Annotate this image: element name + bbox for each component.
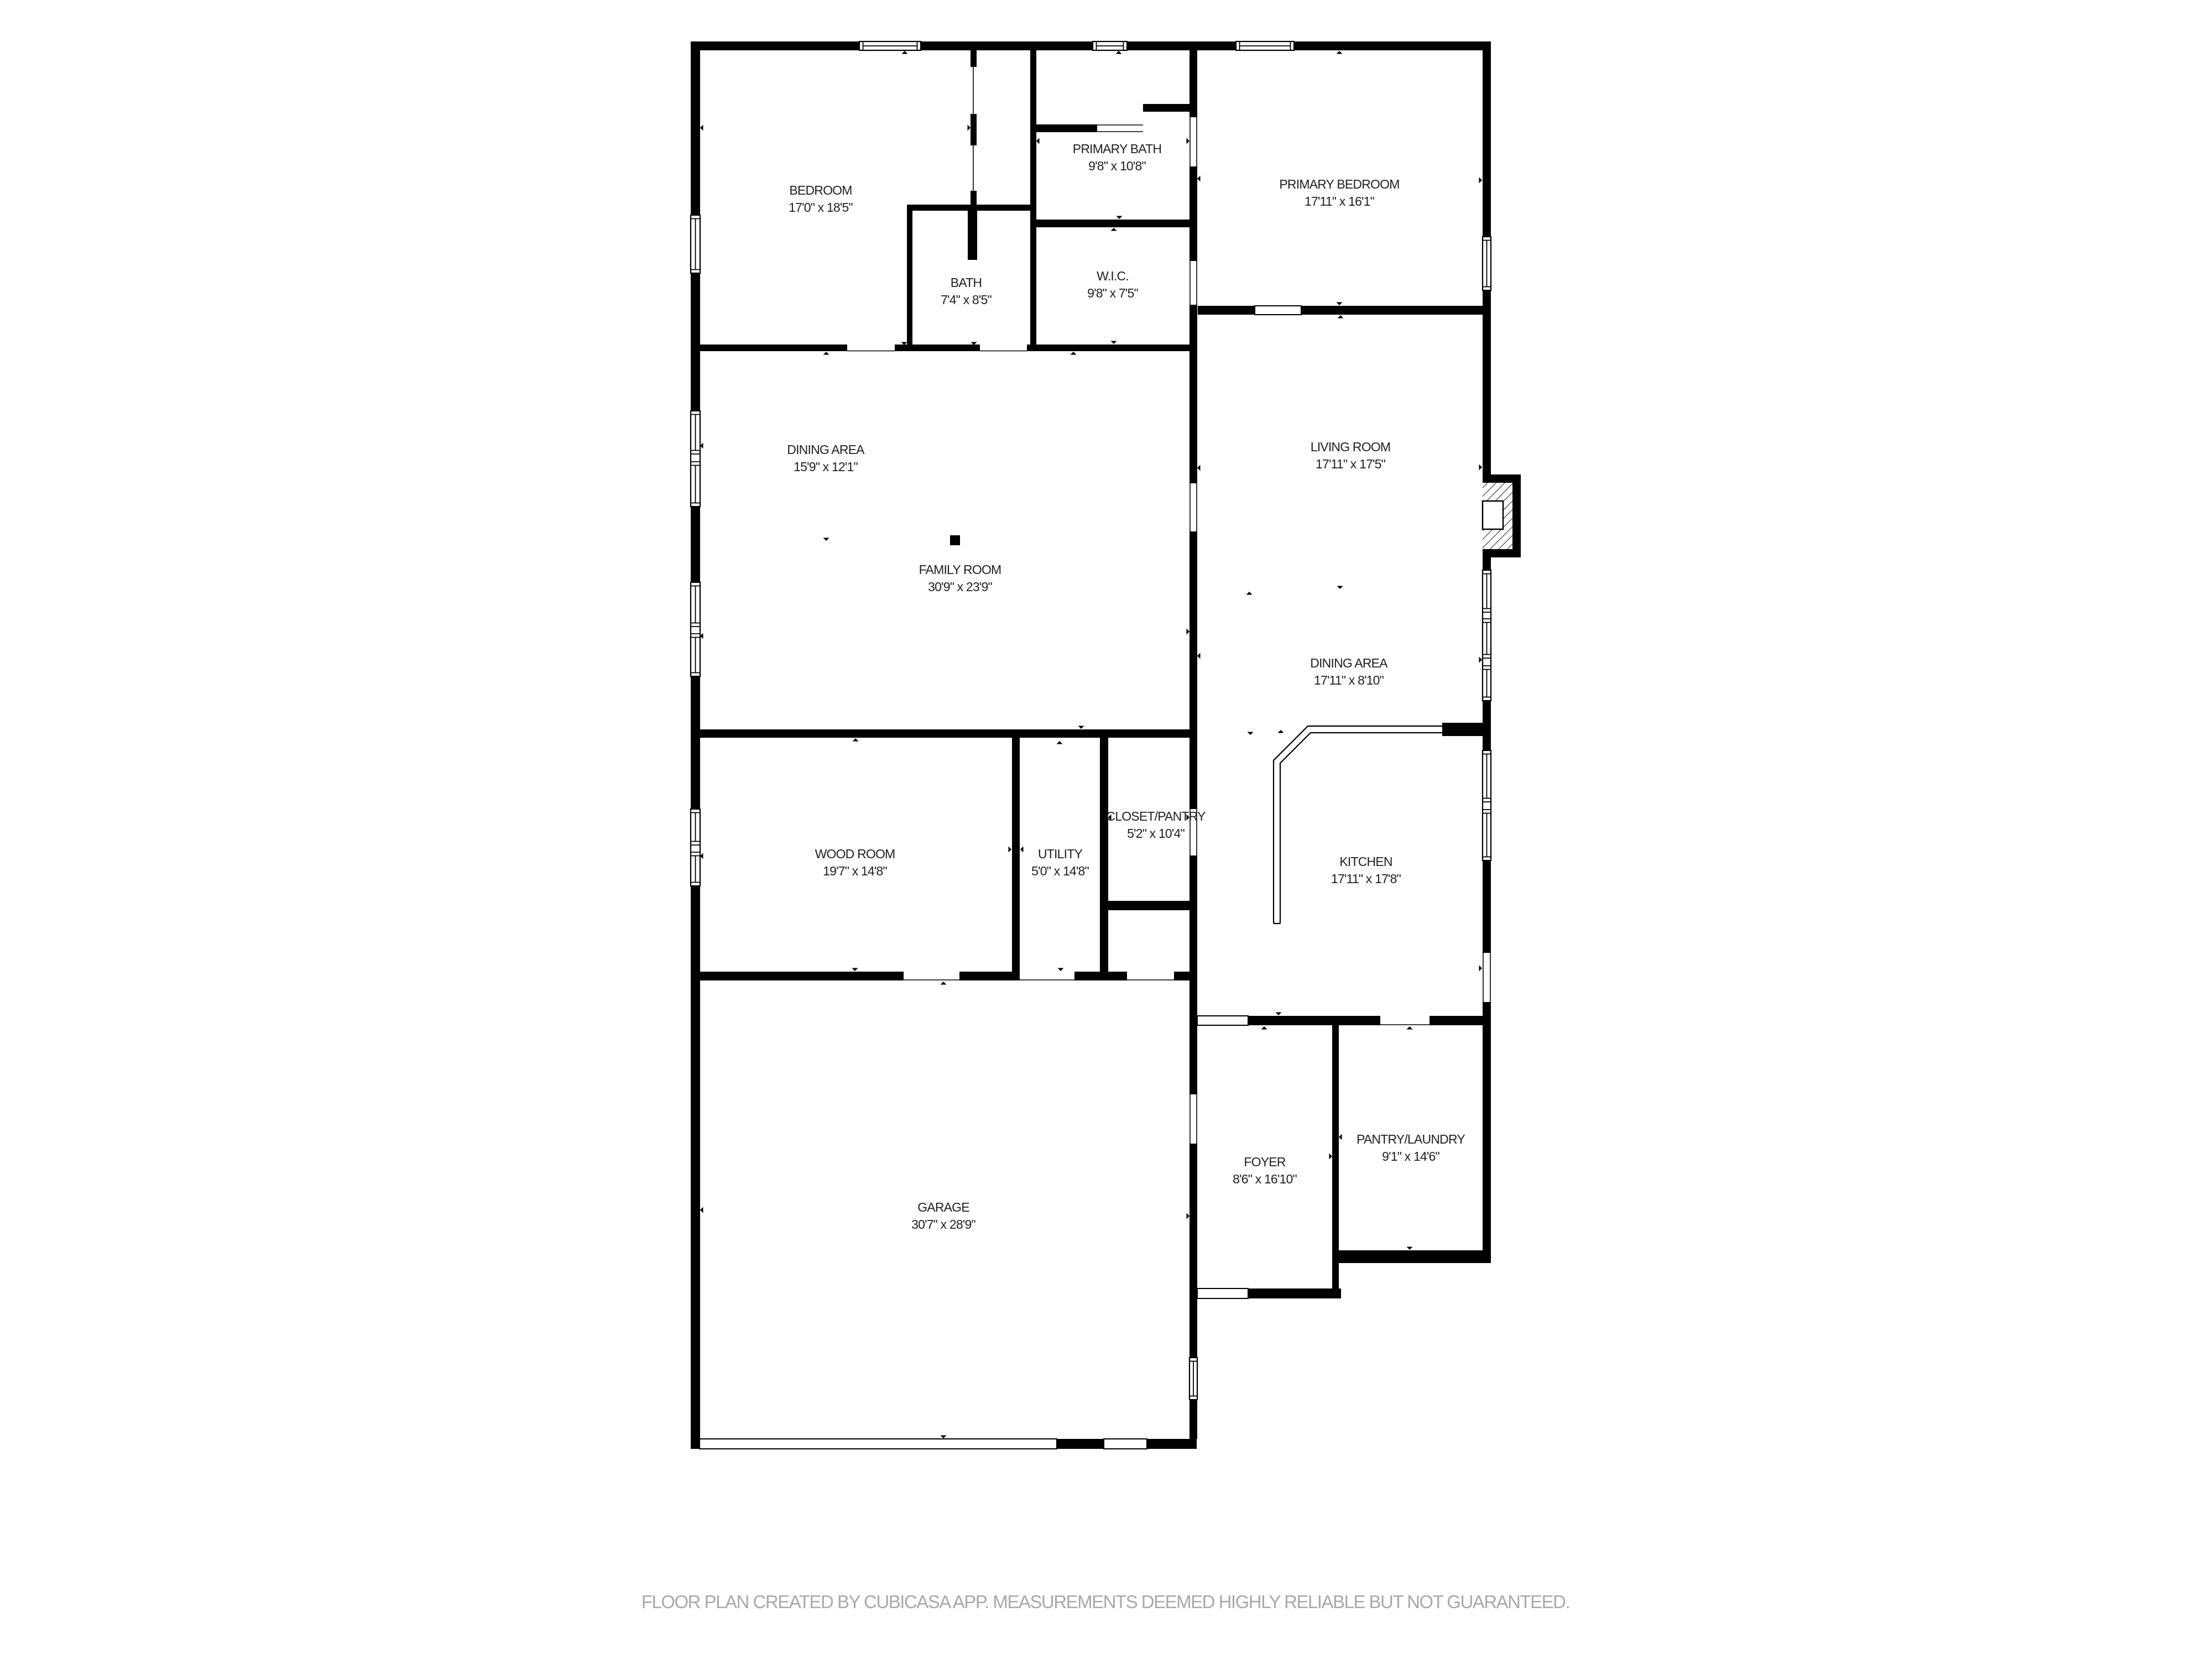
svg-text:9'8" x 7'5": 9'8" x 7'5"	[1087, 286, 1138, 300]
svg-text:DINING AREA: DINING AREA	[1310, 656, 1388, 670]
svg-text:W.I.C.: W.I.C.	[1097, 269, 1129, 283]
svg-text:KITCHEN: KITCHEN	[1339, 854, 1392, 869]
svg-text:9'8" x 10'8": 9'8" x 10'8"	[1088, 159, 1146, 173]
svg-text:5'0" x 14'8": 5'0" x 14'8"	[1031, 864, 1089, 878]
svg-text:5'2" x 10'4": 5'2" x 10'4"	[1127, 826, 1185, 841]
svg-text:30'9" x 23'9": 30'9" x 23'9"	[928, 580, 992, 594]
svg-text:9'1" x 14'6": 9'1" x 14'6"	[1382, 1149, 1439, 1164]
svg-text:DINING AREA: DINING AREA	[787, 442, 865, 457]
svg-text:PRIMARY BATH: PRIMARY BATH	[1073, 142, 1161, 156]
svg-text:FOYER: FOYER	[1244, 1155, 1285, 1169]
svg-text:17'11" x 17'8": 17'11" x 17'8"	[1331, 872, 1401, 886]
svg-text:UTILITY: UTILITY	[1038, 847, 1082, 861]
svg-text:19'7" x 14'8": 19'7" x 14'8"	[823, 864, 887, 878]
svg-text:BEDROOM: BEDROOM	[789, 183, 852, 197]
svg-text:30'7" x 28'9": 30'7" x 28'9"	[911, 1217, 975, 1232]
svg-text:FAMILY ROOM: FAMILY ROOM	[919, 562, 1001, 577]
svg-text:GARAGE: GARAGE	[917, 1200, 969, 1214]
svg-text:CLOSET/PANTRY: CLOSET/PANTRY	[1106, 809, 1206, 823]
svg-text:BATH: BATH	[951, 275, 982, 290]
svg-text:15'9" x 12'1": 15'9" x 12'1"	[794, 460, 858, 474]
svg-text:17'11" x 17'5": 17'11" x 17'5"	[1316, 457, 1386, 471]
svg-text:8'6" x 16'10": 8'6" x 16'10"	[1233, 1172, 1297, 1186]
svg-text:PANTRY/LAUNDRY: PANTRY/LAUNDRY	[1357, 1132, 1465, 1146]
svg-text:17'11" x 8'10": 17'11" x 8'10"	[1314, 673, 1384, 687]
svg-text:17'0" x 18'5": 17'0" x 18'5"	[789, 200, 853, 215]
svg-text:PRIMARY BEDROOM: PRIMARY BEDROOM	[1279, 177, 1399, 191]
svg-text:FLOOR PLAN CREATED BY CUBICASA: FLOOR PLAN CREATED BY CUBICASA APP. MEAS…	[641, 1592, 1569, 1612]
svg-text:7'4" x 8'5": 7'4" x 8'5"	[941, 293, 992, 307]
svg-text:LIVING ROOM: LIVING ROOM	[1311, 440, 1391, 454]
svg-text:WOOD ROOM: WOOD ROOM	[815, 847, 895, 861]
svg-text:17'11" x 16'1": 17'11" x 16'1"	[1305, 194, 1375, 208]
